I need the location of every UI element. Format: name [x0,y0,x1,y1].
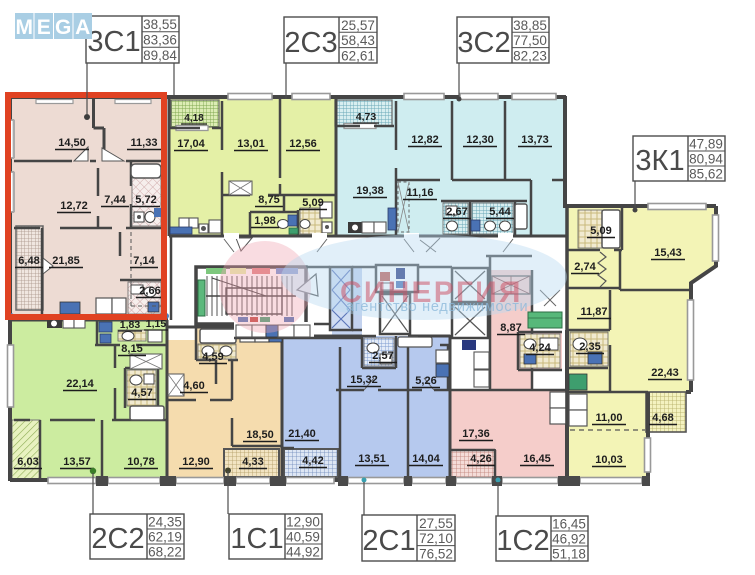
svg-text:4,57: 4,57 [131,387,152,399]
svg-text:5,72: 5,72 [135,194,156,206]
svg-text:5,09: 5,09 [590,225,611,237]
svg-text:18,50: 18,50 [246,429,274,441]
svg-text:A: A [75,16,90,39]
svg-text:21,40: 21,40 [288,428,316,440]
svg-text:E: E [37,16,51,39]
svg-text:12,90: 12,90 [286,515,320,530]
svg-text:24,35: 24,35 [148,515,182,530]
svg-text:17,36: 17,36 [462,428,490,440]
svg-text:40,59: 40,59 [286,530,320,545]
svg-text:5,26: 5,26 [415,375,436,387]
svg-text:4,60: 4,60 [183,380,204,392]
svg-text:2С1: 2С1 [362,525,415,557]
svg-text:25,57: 25,57 [341,18,375,33]
svg-text:1С1: 1С1 [230,523,283,555]
svg-text:4,59: 4,59 [202,351,223,363]
svg-text:14,04: 14,04 [412,453,440,465]
svg-text:4,26: 4,26 [470,453,491,465]
svg-text:3С2: 3С2 [457,27,510,59]
svg-text:4,73: 4,73 [356,111,377,123]
svg-text:2С2: 2С2 [91,523,144,555]
svg-text:13,57: 13,57 [63,456,91,468]
svg-text:11,00: 11,00 [596,412,623,424]
svg-text:11,87: 11,87 [581,306,608,318]
svg-text:89,84: 89,84 [143,48,177,63]
svg-text:8,75: 8,75 [258,194,279,206]
svg-text:21,85: 21,85 [52,255,80,267]
svg-text:4,18: 4,18 [184,113,204,124]
svg-text:1,83: 1,83 [120,319,141,331]
svg-text:58,43: 58,43 [341,33,375,48]
svg-text:80,94: 80,94 [689,152,723,167]
svg-text:38,55: 38,55 [143,17,177,32]
svg-text:M: M [15,16,33,39]
svg-text:44,92: 44,92 [286,545,320,560]
svg-text:2,57: 2,57 [372,350,393,362]
svg-text:72,10: 72,10 [419,531,453,546]
svg-text:76,52: 76,52 [419,547,453,562]
svg-text:11,16: 11,16 [407,187,434,199]
svg-text:10,03: 10,03 [595,454,623,466]
svg-text:27,55: 27,55 [419,516,453,531]
svg-text:46,92: 46,92 [552,532,586,547]
svg-text:16,45: 16,45 [523,453,551,465]
svg-text:8,87: 8,87 [500,322,521,334]
svg-text:3С1: 3С1 [87,26,140,58]
svg-text:1С2: 1С2 [496,525,549,557]
svg-text:22,43: 22,43 [651,367,679,379]
svg-text:4,33: 4,33 [242,456,263,468]
svg-text:82,23: 82,23 [513,49,547,64]
svg-text:1,98: 1,98 [254,215,275,227]
svg-text:2С3: 2С3 [284,27,337,59]
svg-text:5,44: 5,44 [489,206,511,218]
svg-text:12,82: 12,82 [411,134,439,146]
svg-text:5,09: 5,09 [302,197,323,209]
svg-text:85,62: 85,62 [689,167,723,182]
svg-text:10,78: 10,78 [127,456,155,468]
svg-text:6,03: 6,03 [17,456,38,468]
svg-text:2,74: 2,74 [574,261,596,273]
svg-text:62,61: 62,61 [341,49,375,64]
svg-text:77,50: 77,50 [513,33,547,48]
svg-text:7,14: 7,14 [133,255,155,267]
svg-text:2,67: 2,67 [446,206,467,218]
svg-text:4,24: 4,24 [529,342,551,354]
svg-text:6,48: 6,48 [18,255,39,267]
svg-text:51,18: 51,18 [552,547,586,562]
svg-text:15,32: 15,32 [350,374,378,386]
svg-text:агентство недвижимости: агентство недвижимости [346,299,528,315]
svg-text:15,43: 15,43 [654,247,682,259]
svg-text:83,36: 83,36 [143,33,177,48]
svg-text:62,19: 62,19 [148,530,182,545]
svg-text:8,15: 8,15 [121,343,142,355]
svg-text:12,72: 12,72 [60,200,88,212]
svg-text:47,89: 47,89 [689,137,723,152]
svg-text:22,14: 22,14 [66,378,94,390]
svg-text:2,35: 2,35 [579,341,600,353]
svg-text:13,01: 13,01 [237,138,265,150]
svg-text:17,04: 17,04 [177,138,205,150]
svg-text:G: G [55,16,71,39]
svg-text:12,56: 12,56 [289,138,317,150]
svg-text:12,30: 12,30 [466,134,494,146]
svg-text:4,42: 4,42 [302,455,323,467]
svg-text:7,44: 7,44 [104,194,126,206]
svg-text:16,45: 16,45 [552,517,586,532]
svg-text:68,22: 68,22 [148,545,182,560]
svg-text:4,68: 4,68 [652,412,673,424]
svg-text:11,33: 11,33 [131,137,158,149]
svg-text:13,51: 13,51 [358,453,386,465]
svg-text:38,85: 38,85 [513,18,547,33]
svg-text:13,73: 13,73 [521,134,549,146]
svg-text:2,66: 2,66 [139,285,160,297]
svg-text:19,38: 19,38 [356,185,384,197]
svg-text:12,90: 12,90 [182,456,210,468]
svg-text:14,50: 14,50 [58,137,86,149]
svg-text:3К1: 3К1 [635,145,684,177]
